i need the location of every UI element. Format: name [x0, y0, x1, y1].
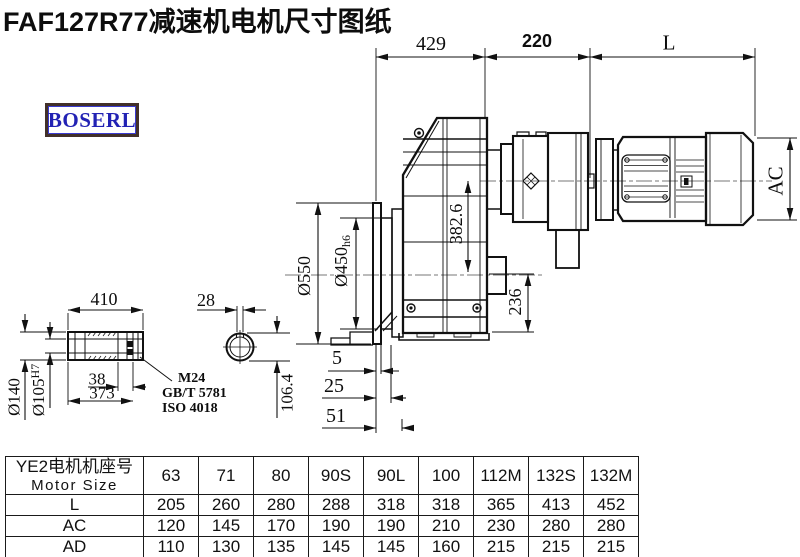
cell: 215: [529, 536, 584, 557]
cell: 160: [419, 536, 474, 557]
cell: 145: [309, 536, 364, 557]
cell: 190: [309, 515, 364, 536]
cell: 452: [584, 494, 639, 515]
motor-size-label-en: Motor Size: [6, 477, 143, 494]
col-header: 90S: [309, 457, 364, 495]
dim-25-label: 25: [324, 376, 344, 396]
cell: 145: [199, 515, 254, 536]
cell: 215: [474, 536, 529, 557]
cell: 318: [419, 494, 474, 515]
drawing-sheet: FAF127R77减速机电机尺寸图纸 BOSERL 429 220 L AC Ø…: [0, 0, 800, 557]
dim-410-label: 410: [91, 290, 118, 308]
cell: 280: [529, 515, 584, 536]
cell: 135: [254, 536, 309, 557]
note-std2: ISO 4018: [162, 402, 227, 417]
col-header: 100: [419, 457, 474, 495]
note-std1: GB/T 5781: [162, 387, 227, 402]
row-label: L: [6, 494, 144, 515]
dim-450-value: Ø450: [331, 247, 351, 287]
cell: 260: [199, 494, 254, 515]
row-label: AC: [6, 515, 144, 536]
note-bolt: M24: [178, 372, 227, 387]
motor-size-label-cn: YE2电机机座号: [6, 457, 143, 477]
cell: 145: [364, 536, 419, 557]
col-header: 112M: [474, 457, 529, 495]
table-row-AD: AD 110 130 135 145 145 160 215 215 215: [6, 536, 639, 557]
dim-105-value: Ø105: [29, 378, 48, 416]
cell: 230: [474, 515, 529, 536]
col-header: 80: [254, 457, 309, 495]
row-label: AD: [6, 536, 144, 557]
col-header: 63: [144, 457, 199, 495]
cell: 130: [199, 536, 254, 557]
dim-450-tolerance: h6: [339, 235, 353, 247]
dim-5-label: 5: [332, 348, 342, 368]
dim-550-label: Ø550: [295, 256, 313, 296]
cell: 210: [419, 515, 474, 536]
col-header: 71: [199, 457, 254, 495]
dim-220-label: 220: [522, 32, 552, 50]
dim-28-label: 28: [197, 291, 215, 309]
cell: 318: [364, 494, 419, 515]
dim-AC-label: AC: [766, 166, 787, 195]
motor-size-table: YE2电机机座号 Motor Size 63 71 80 90S 90L 100…: [5, 456, 639, 557]
dim-3826-label: 382.6: [447, 204, 465, 245]
cell: 365: [474, 494, 529, 515]
cell: 280: [584, 515, 639, 536]
dim-105-tolerance: H7: [28, 364, 42, 379]
dim-1064-label: 106.4: [279, 374, 296, 412]
boserl-logo-text: BOSERL: [48, 108, 136, 133]
motor: [596, 133, 753, 225]
dim-373-label: 373: [89, 385, 115, 402]
cell: 215: [584, 536, 639, 557]
cell: 170: [254, 515, 309, 536]
col-header: 132S: [529, 457, 584, 495]
cell: 413: [529, 494, 584, 515]
cell: 110: [144, 536, 199, 557]
cell: 120: [144, 515, 199, 536]
dim-429-label: 429: [416, 34, 446, 54]
table-row-AC: AC 120 145 170 190 190 210 230 280 280: [6, 515, 639, 536]
input-adapter: [487, 132, 594, 268]
col-header: 90L: [364, 457, 419, 495]
cell: 190: [364, 515, 419, 536]
bolt-standard-note: M24 GB/T 5781 ISO 4018: [162, 372, 227, 416]
dim-450-label: Ø450h6: [332, 235, 352, 287]
dim-L-label: L: [663, 33, 676, 54]
dim-105-label: Ø105H7: [29, 364, 47, 416]
table-row-L: L 205 260 280 288 318 318 365 413 452: [6, 494, 639, 515]
boserl-logo: BOSERL: [45, 103, 139, 137]
dim-140-label: Ø140: [6, 378, 23, 416]
dim-236-label: 236: [506, 289, 524, 316]
cell: 288: [309, 494, 364, 515]
dim-51-label: 51: [326, 406, 346, 426]
centerlines: [285, 181, 772, 275]
table-corner-cell: YE2电机机座号 Motor Size: [6, 457, 144, 495]
cell: 205: [144, 494, 199, 515]
col-header: 132M: [584, 457, 639, 495]
cell: 280: [254, 494, 309, 515]
table-header-row: YE2电机机座号 Motor Size 63 71 80 90S 90L 100…: [6, 457, 639, 495]
page-title: FAF127R77减速机电机尺寸图纸: [3, 0, 392, 39]
